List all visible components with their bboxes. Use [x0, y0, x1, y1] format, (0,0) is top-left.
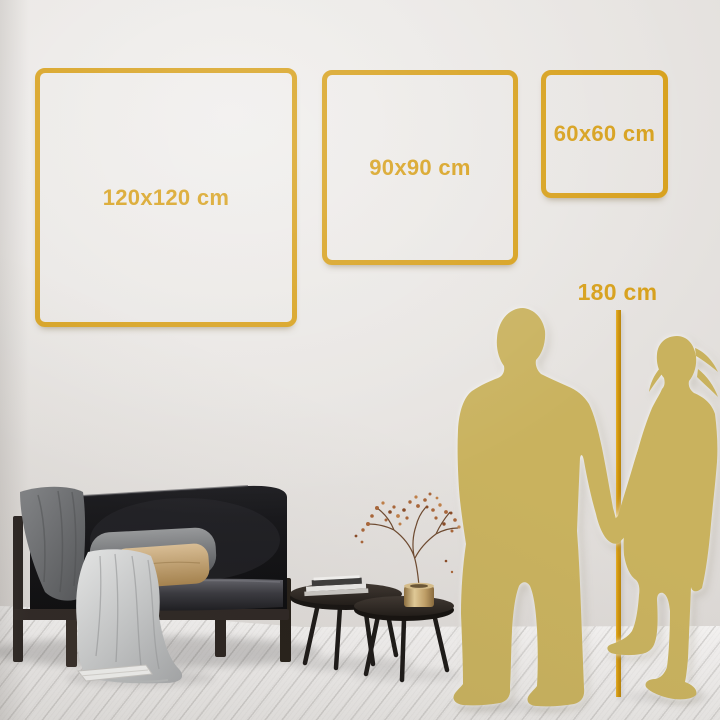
man-silhouette — [453, 308, 622, 706]
height-ruler-label: 180 cm — [545, 279, 690, 306]
couple-silhouettes — [0, 0, 720, 720]
woman-silhouette — [607, 336, 718, 699]
wall-art-size-guide: 120x120 cm 90x90 cm 60x60 cm 180 cm — [0, 0, 720, 720]
